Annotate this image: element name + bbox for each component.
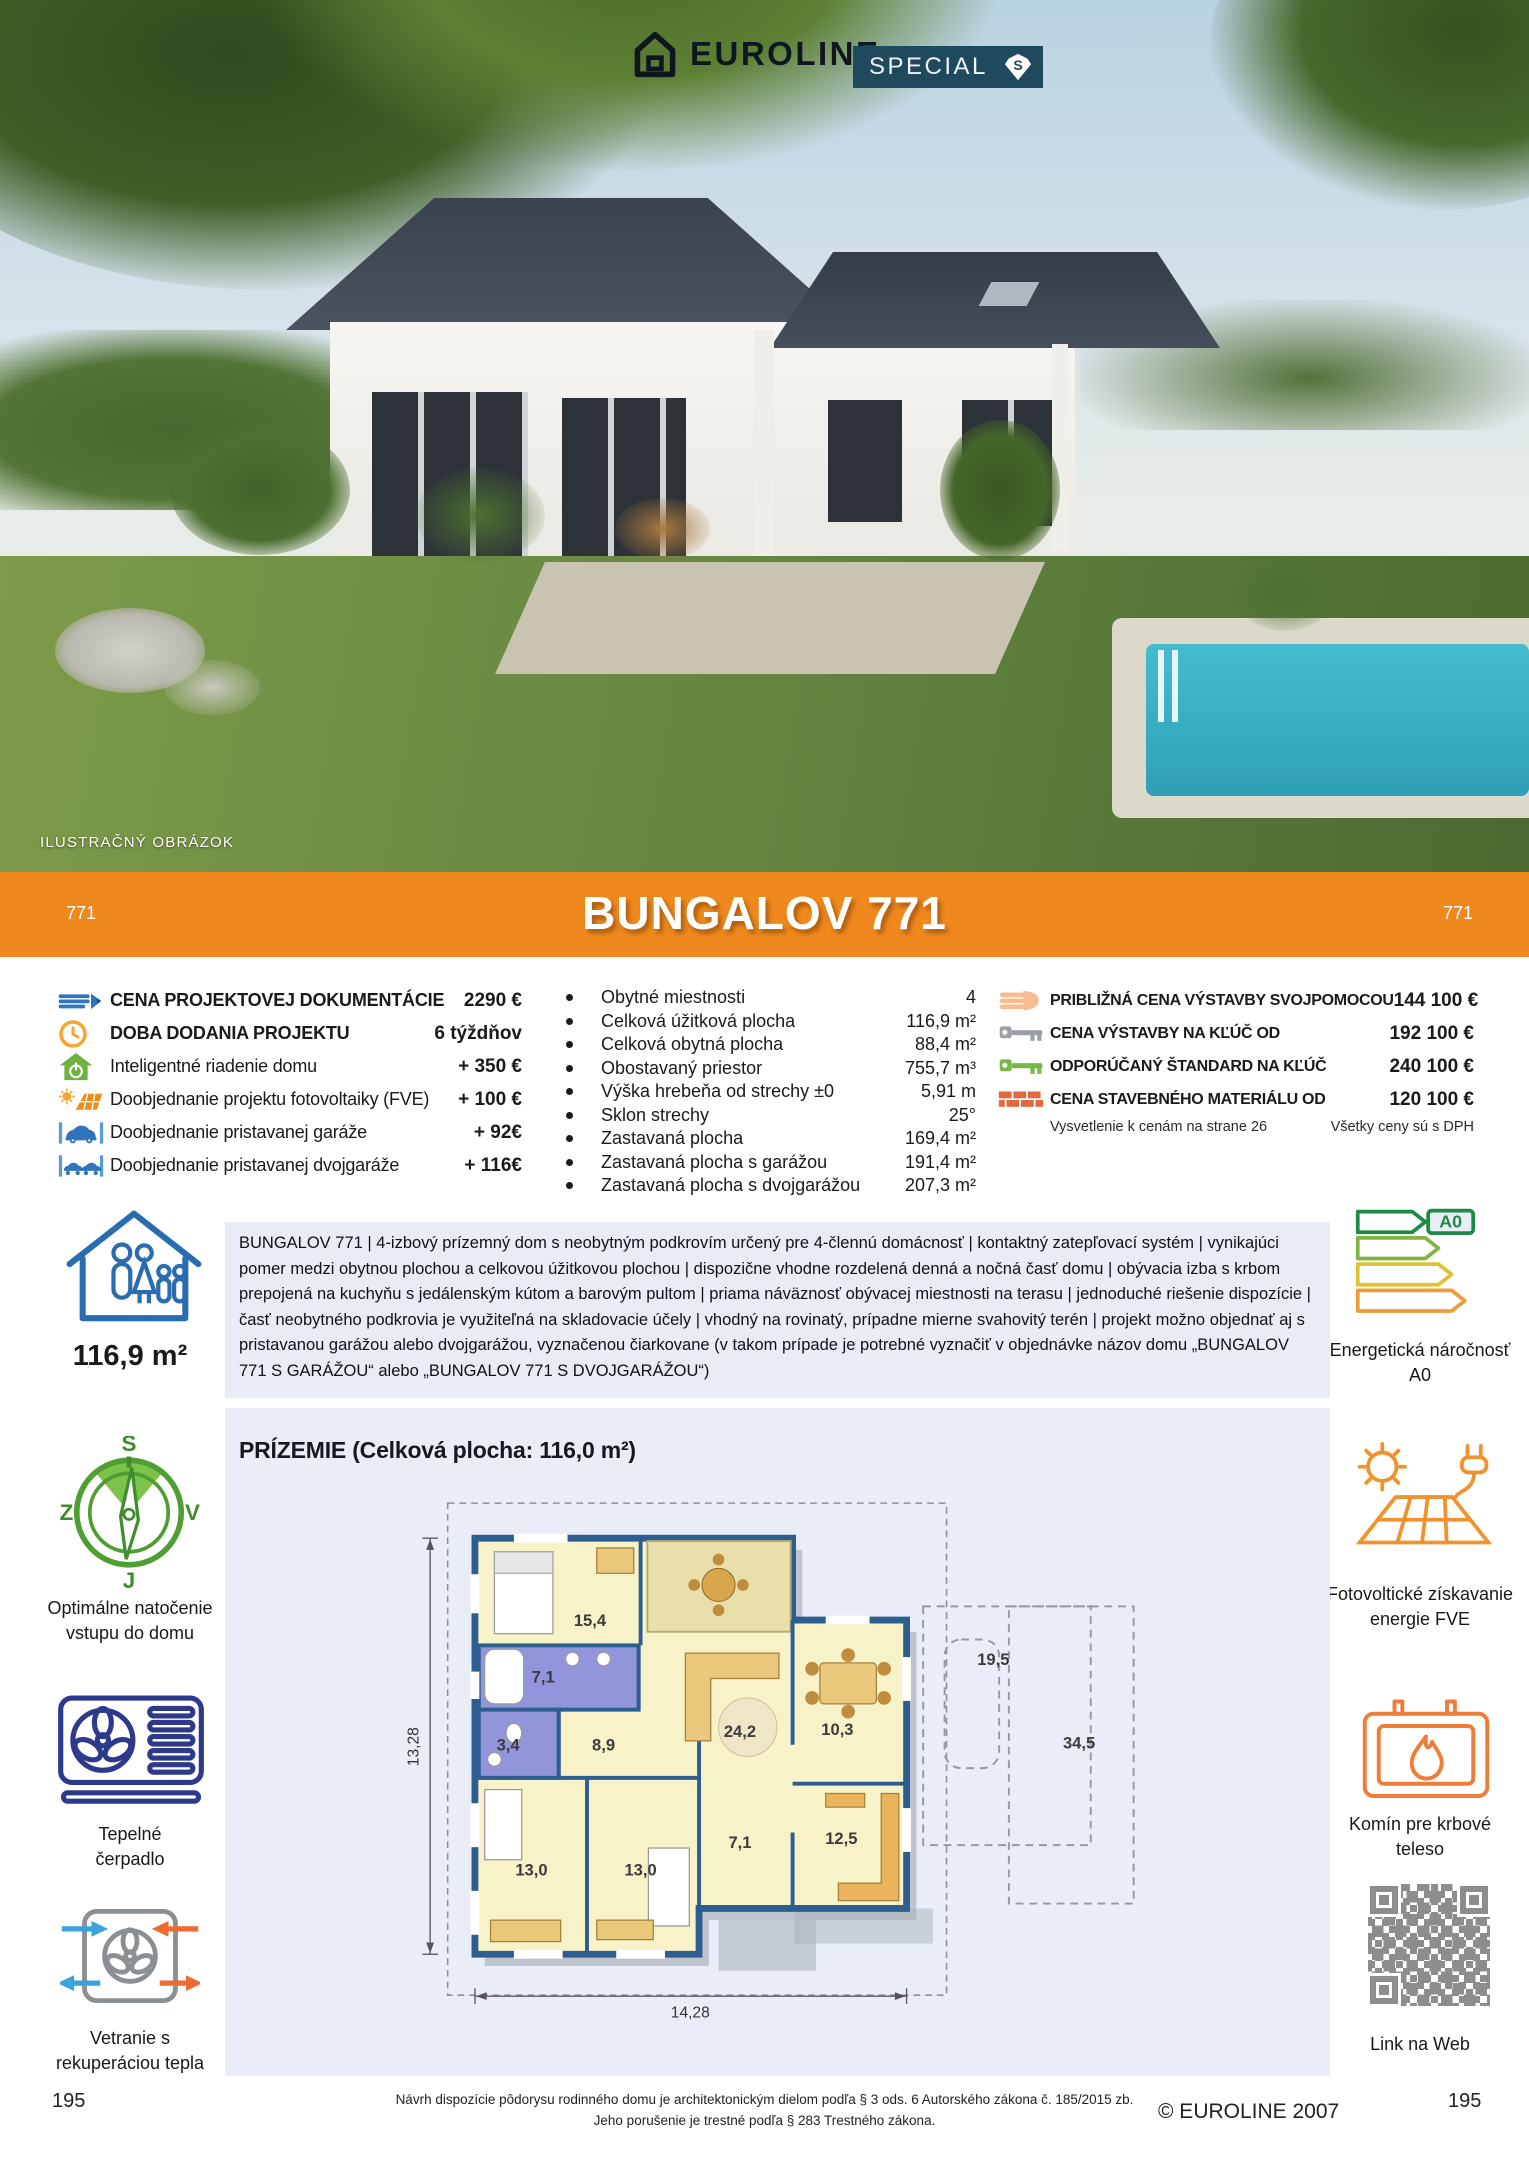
room-area-label: 13,0 [624,1860,656,1879]
spec-label: CENA STAVEBNÉHO MATERIÁLU OD [1050,1091,1325,1109]
spec-value: 192 100 € [1389,1023,1474,1045]
spec-label: Celková obytná plocha [601,1034,783,1055]
room-area-label: 8,9 [592,1736,615,1755]
plan-height-dimension: 13,28 [405,1727,422,1766]
price-notes: Vysvetlenie k cenám na strane 26 Všetky … [998,1119,1474,1135]
spec-value: 755,7 m³ [905,1058,976,1079]
floorplan-drawing: 15,4 7,1 3,4 8,9 24,2 10,3 19,5 34,5 13,… [397,1462,1157,2047]
spec-label: Obytné miestnosti [601,987,745,1008]
spec-row: Zastavaná plocha s dvojgarážou207,3 m² [558,1174,976,1198]
page-number-right: 195 [1448,2090,1481,2113]
key-green-icon [998,1055,1050,1079]
compass-west-label: Z [60,1500,74,1525]
spec-value: 207,3 m² [905,1175,976,1196]
energy-rating-icon: A0 [1354,1208,1476,1324]
page-title: BUNGALOV 771 [0,886,1529,940]
floorplan-title: PRÍZEMIE (Celková plocha: 116,0 m²) [239,1437,636,1464]
spec-row: Doobjednanie pristavanej garáže + 92€ [58,1116,522,1149]
spec-row: CENA STAVEBNÉHO MATERIÁLU OD 120 100 € [998,1083,1474,1116]
specs-column-left: CENA PROJEKTOVEJ DOKUMENTÁCIE 2290 € DOB… [58,984,522,1182]
spec-value: 144 100 € [1394,990,1479,1012]
spec-value: 6 týždňov [434,1023,522,1045]
usable-area-value: 116,9 m² [28,1340,232,1373]
room-area-label: 15,4 [574,1611,607,1630]
special-label: SPECIAL [869,53,988,81]
spec-row: PRIBLIŽNÁ CENA VÝSTAVBY SVOJPOMOCOU 144 … [998,984,1474,1017]
special-s-letter: S [1013,57,1022,73]
bricks-icon [998,1088,1050,1112]
spec-label: Doobjednanie projektu fotovoltaiky (FVE) [110,1089,429,1110]
hand-icon [998,988,1050,1014]
special-s-icon: S [1003,52,1033,82]
window-right [828,400,902,522]
bullet-icon [566,1135,573,1142]
spec-label: Sklon strechy [601,1105,709,1126]
spec-value: + 92€ [474,1122,522,1144]
porch-column [754,330,774,556]
price-note-left: Vysvetlenie k cenám na strane 26 [1050,1119,1267,1135]
house-description: BUNGALOV 771 | 4-izbový prízemný dom s n… [225,1222,1330,1398]
pool-ladder [1158,650,1164,722]
floorplan-panel: PRÍZEMIE (Celková plocha: 116,0 m²) [225,1408,1330,2076]
spec-row: CENA PROJEKTOVEJ DOKUMENTÁCIE 2290 € [58,984,522,1017]
spec-value: 25° [949,1105,976,1126]
house-photo: EUROLINE SPECIAL S ILUSTRAČNÝ OBRÁZOK [0,0,1529,872]
plan-width-dimension: 14,28 [671,2005,710,2022]
qr-finder-icon [1370,1886,1398,1914]
heat-pump-caption: Tepelné čerpadlo [73,1822,187,1872]
spec-label: Zastavaná plocha s dvojgarážou [601,1175,860,1196]
room-area-label: 13,0 [515,1860,547,1879]
spec-label: Zastavaná plocha [601,1128,743,1149]
solar-project-icon [58,1086,110,1114]
bush-3 [1235,556,1335,631]
energy-caption: Energetická náročnosť A0 [1322,1338,1518,1388]
qr-code [1368,1884,1490,2006]
spec-label: Celková úžitková plocha [601,1011,795,1032]
spec-value: 88,4 m² [915,1034,976,1055]
spec-row: CENA VÝSTAVBY NA KĽÚČ OD 192 100 € [998,1017,1474,1050]
spec-row: DOBA DODANIA PROJEKTU 6 týždňov [58,1017,522,1050]
spec-value: 2290 € [464,990,522,1012]
bullet-icon [566,994,573,1001]
bullet-icon [566,1088,573,1095]
spec-label: Obostavaný priestor [601,1058,762,1079]
compass-caption: Optimálne natočenie vstupu do domu [38,1596,222,1646]
euroline-logo: EUROLINE [630,28,881,80]
photovoltaic-icon [1352,1436,1494,1560]
specs-column-right: PRIBLIŽNÁ CENA VÝSTAVBY SVOJPOMOCOU 144 … [998,984,1474,1135]
key-gray-icon [998,1022,1050,1046]
room-area-label: 24,2 [724,1722,756,1741]
spec-value: + 116€ [464,1155,522,1177]
fireplace-chimney-icon [1356,1698,1496,1803]
euroline-house-icon [630,30,680,78]
compass-south-label: J [123,1568,135,1590]
room-area-label: 7,1 [532,1667,555,1686]
pool [1146,644,1529,796]
spec-row: Celková úžitková plocha116,9 m² [558,1010,976,1034]
ventilation-caption: Vetranie s rekuperáciou tepla [38,2026,222,2076]
compass-icon: S V J Z [58,1436,200,1590]
spec-row: ODPORÚČANÝ ŠTANDARD NA KĽÚČ 240 100 € [998,1050,1474,1083]
spec-label: Doobjednanie pristavanej dvojgaráže [110,1155,399,1176]
spec-row: Doobjednanie pristavanej dvojgaráže + 11… [58,1149,522,1182]
spec-row: Zastavaná plocha169,4 m² [558,1127,976,1151]
qr-caption: Link na Web [1324,2032,1516,2057]
qr-finder-icon [1370,1976,1398,2004]
spec-row: Obytné miestnosti4 [558,986,976,1010]
spec-value: 169,4 m² [905,1128,976,1149]
heat-pump-icon [56,1692,206,1812]
clock-icon [58,1019,110,1049]
title-banner: 771 BUNGALOV 771 771 [0,872,1529,957]
spec-row: Zastavaná plocha s garážou191,4 m² [558,1151,976,1175]
model-number-right: 771 [1443,903,1473,924]
room-area-label: 19,5 [977,1650,1009,1669]
bullet-icon [566,1018,573,1025]
spec-value: 240 100 € [1389,1056,1474,1078]
room-area-label: 12,5 [825,1829,857,1848]
spec-value: + 350 € [458,1056,522,1078]
spec-label: ODPORÚČANÝ ŠTANDARD NA KĽÚČ [1050,1058,1326,1076]
bullet-icon [566,1182,573,1189]
spec-label: PRIBLIŽNÁ CENA VÝSTAVBY SVOJPOMOCOU [1050,992,1394,1010]
spec-row: Inteligentné riadenie domu + 350 € [58,1050,522,1083]
garage-icon [58,1120,110,1146]
ventilation-icon [60,1900,200,2012]
spec-value: 116,9 m² [906,1011,976,1032]
foliage-top-right [1210,0,1529,210]
room-area-label: 10,3 [821,1720,853,1739]
bush [170,425,350,555]
energy-rating-badge: A0 [1439,1212,1462,1232]
pool-ladder-2 [1172,650,1178,722]
fve-caption: Fotovoltické získavanie energie FVE [1324,1582,1516,1632]
spec-label: Doobjednanie pristavanej garáže [110,1122,367,1143]
bullet-icon [566,1112,573,1119]
spec-label: CENA PROJEKTOVEJ DOKUMENTÁCIE [110,990,444,1011]
page-number-left: 195 [52,2090,85,2113]
spec-row: Výška hrebeňa od strechy ±05,91 m [558,1080,976,1104]
pencil-icon [58,987,110,1015]
spec-label: Výška hrebeňa od strechy ±0 [601,1081,834,1102]
specs-column-middle: Obytné miestnosti4 Celková úžitková ploc… [558,986,976,1198]
spec-row: Sklon strechy25° [558,1104,976,1128]
bullet-icon [566,1159,573,1166]
spec-row: Celková obytná plocha88,4 m² [558,1033,976,1057]
compass-north-label: S [122,1436,137,1456]
house-family-icon [64,1204,204,1326]
rock-2 [165,660,260,715]
spec-row: Obostavaný priestor755,7 m³ [558,1057,976,1081]
photo-caption: ILUSTRAČNÝ OBRÁZOK [40,834,234,851]
room-area-label: 7,1 [728,1833,751,1852]
room-area-label: 3,4 [497,1736,521,1755]
special-badge: SPECIAL S [853,46,1043,88]
brand-name: EUROLINE [690,35,881,73]
room-area-label: 34,5 [1063,1734,1095,1753]
spec-label: Zastavaná plocha s garážou [601,1152,827,1173]
bullet-icon [566,1041,573,1048]
spec-label: Inteligentné riadenie domu [110,1056,317,1077]
double-garage-icon [58,1153,110,1179]
copyright: © EUROLINE 2007 [1158,2100,1339,2124]
compass-east-label: V [185,1500,200,1525]
price-note-right: Všetky ceny sú s DPH [1331,1119,1474,1135]
catalog-page: EUROLINE SPECIAL S ILUSTRAČNÝ OBRÁZOK 77… [0,0,1529,2160]
spec-label: DOBA DODANIA PROJEKTU [110,1023,349,1044]
bush-2 [415,468,545,563]
patio-furniture [615,498,710,560]
spec-row: Doobjednanie projektu fotovoltaiky (FVE)… [58,1083,522,1116]
smart-home-icon [58,1051,110,1082]
bullet-icon [566,1065,573,1072]
spec-value: + 100 € [458,1089,522,1111]
chimney-caption: Komín pre krbové teleso [1324,1812,1516,1862]
terrace-paving [495,562,1045,674]
spec-value: 191,4 m² [905,1152,976,1173]
spec-value: 5,91 m [921,1081,976,1102]
shrub-right [940,420,1060,560]
qr-finder-icon [1460,1886,1488,1914]
spec-label: CENA VÝSTAVBY NA KĽÚČ OD [1050,1025,1280,1043]
spec-value: 4 [966,987,976,1008]
spec-value: 120 100 € [1389,1089,1474,1111]
